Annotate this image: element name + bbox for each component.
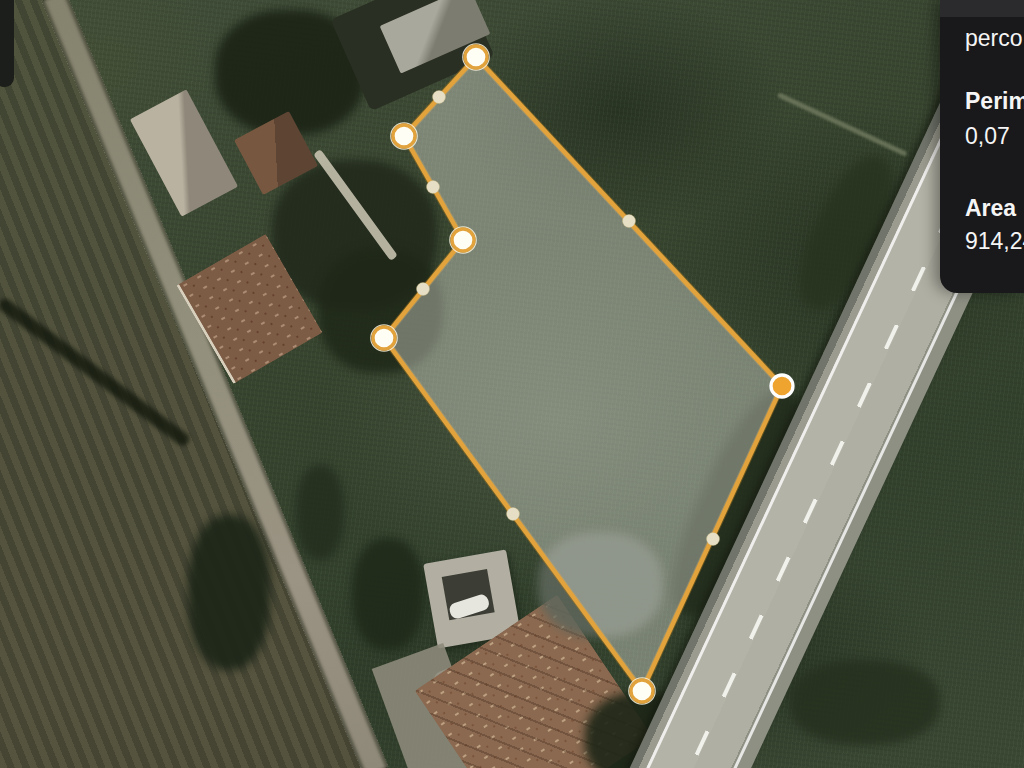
panel-title: perco — [965, 26, 1023, 51]
area-value: 914,24 — [965, 229, 1024, 254]
area-label: Area — [965, 196, 1016, 221]
perimeter-value: 0,07 — [965, 124, 1010, 149]
measured-polygon[interactable] — [384, 57, 782, 691]
measurement-overlay — [0, 0, 1024, 768]
midpoint-handle[interactable] — [417, 283, 430, 296]
midpoint-handle[interactable] — [507, 508, 520, 521]
vertex-handle[interactable] — [373, 327, 395, 349]
app-screen: perco Perim 0,07 Area 914,24 — [0, 0, 1024, 768]
corner-ui-bar — [0, 0, 14, 87]
midpoint-handle[interactable] — [433, 91, 446, 104]
measurement-panel: perco Perim 0,07 Area 914,24 — [940, 0, 1024, 293]
midpoint-handle[interactable] — [707, 533, 720, 546]
vertex-handle[interactable] — [631, 680, 653, 702]
midpoint-handle[interactable] — [427, 181, 440, 194]
selected-vertex-handle[interactable] — [771, 375, 793, 397]
midpoint-handle[interactable] — [623, 215, 636, 228]
vertex-handle[interactable] — [465, 46, 487, 68]
perimeter-label: Perim — [965, 89, 1024, 114]
vertex-handle[interactable] — [452, 229, 474, 251]
vertex-handle[interactable] — [393, 125, 415, 147]
panel-top-strip — [940, 0, 1024, 17]
